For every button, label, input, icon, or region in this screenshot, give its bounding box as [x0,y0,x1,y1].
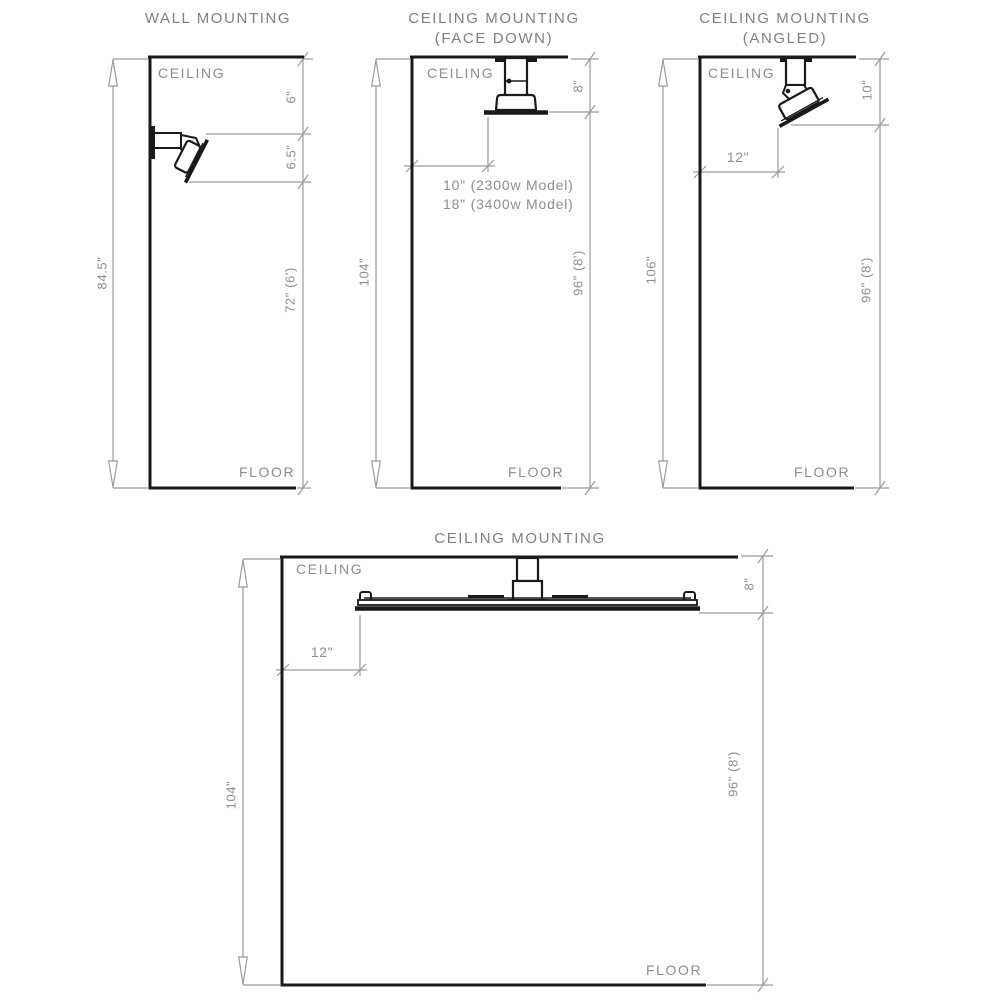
technical-drawing [0,0,1000,1000]
ceiling-large-drawing [239,549,773,992]
ceiling-angled-title-line1: CEILING MOUNTING [699,10,870,27]
ceiling-angled-drop-dim: 10" [860,80,875,101]
ceiling-face-down-floor-clearance-dim: 96" (8') [571,250,586,296]
ceiling-face-down-offset-3400w: 18" (3400w Model) [443,195,574,214]
ceiling-angled-dimensions [659,52,889,495]
ceiling-face-down-floor-label: FLOOR [508,464,564,480]
ceiling-large-heater-fixture [355,558,700,609]
wall-mount-floor-label: FLOOR [239,464,295,480]
ceiling-face-down-ceiling-label: CEILING [427,65,494,81]
ceiling-large-room-outline [280,556,738,987]
ceiling-angled-title-line2: (ANGLED) [743,30,827,47]
wall-mount-ceiling-label: CEILING [158,65,225,81]
ceiling-large-title: CEILING MOUNTING [390,529,650,549]
ceiling-face-down-dimensions [372,52,599,495]
ceiling-face-down-drop-dim: 8" [571,79,586,92]
ceiling-angled-title: CEILING MOUNTING (ANGLED) [655,9,915,49]
ceiling-large-wall-offset-dim: 12" [311,644,333,660]
ceiling-face-down-title: CEILING MOUNTING (FACE DOWN) [364,9,624,49]
wall-mount-room-outline [148,56,304,490]
ceiling-large-overall-height-dim: 104" [224,781,239,810]
wall-mount-ceiling-offset-dim: 6" [284,90,299,103]
ceiling-angled-wall-offset-dim: 12" [727,149,749,165]
wall-mount-floor-clearance-dim: 72" (6') [283,267,298,313]
ceiling-angled-floor-clearance-dim: 96" (8') [859,257,874,303]
ceiling-large-ceiling-label: CEILING [296,561,363,577]
ceiling-angled-ceiling-label: CEILING [708,65,775,81]
wall-mount-title: WALL MOUNTING [88,9,348,29]
ceiling-face-down-room-outline [410,56,568,490]
ceiling-face-down-title-line2: (FACE DOWN) [435,30,553,47]
ceiling-large-drop-dim: 8" [742,577,757,590]
ceiling-angled-heater-fixture [770,58,828,126]
ceiling-large-floor-clearance-dim: 96" (8') [726,751,741,797]
ceiling-large-dimensions [239,549,773,992]
ceiling-face-down-overall-height-dim: 104" [357,258,372,287]
wall-mount-fixture-span-dim: 6.5" [284,144,299,169]
ceiling-face-down-title-line1: CEILING MOUNTING [408,10,579,27]
ceiling-angled-drawing [659,52,889,495]
ceiling-angled-room-outline [698,56,856,490]
ceiling-face-down-offset-2300w: 10" (2300w Model) [443,176,574,195]
ceiling-face-down-drawing [372,52,599,495]
ceiling-large-floor-label: FLOOR [646,962,702,978]
wall-mount-overall-height-dim: 84.5" [95,257,110,290]
ceiling-angled-floor-label: FLOOR [794,464,850,480]
mounting-instructions-page: WALL MOUNTING CEILING FLOOR 84.5" 6" 6.5… [0,0,1000,1000]
ceiling-angled-overall-height-dim: 106" [644,256,659,285]
wall-mount-heater-fixture [153,126,208,183]
